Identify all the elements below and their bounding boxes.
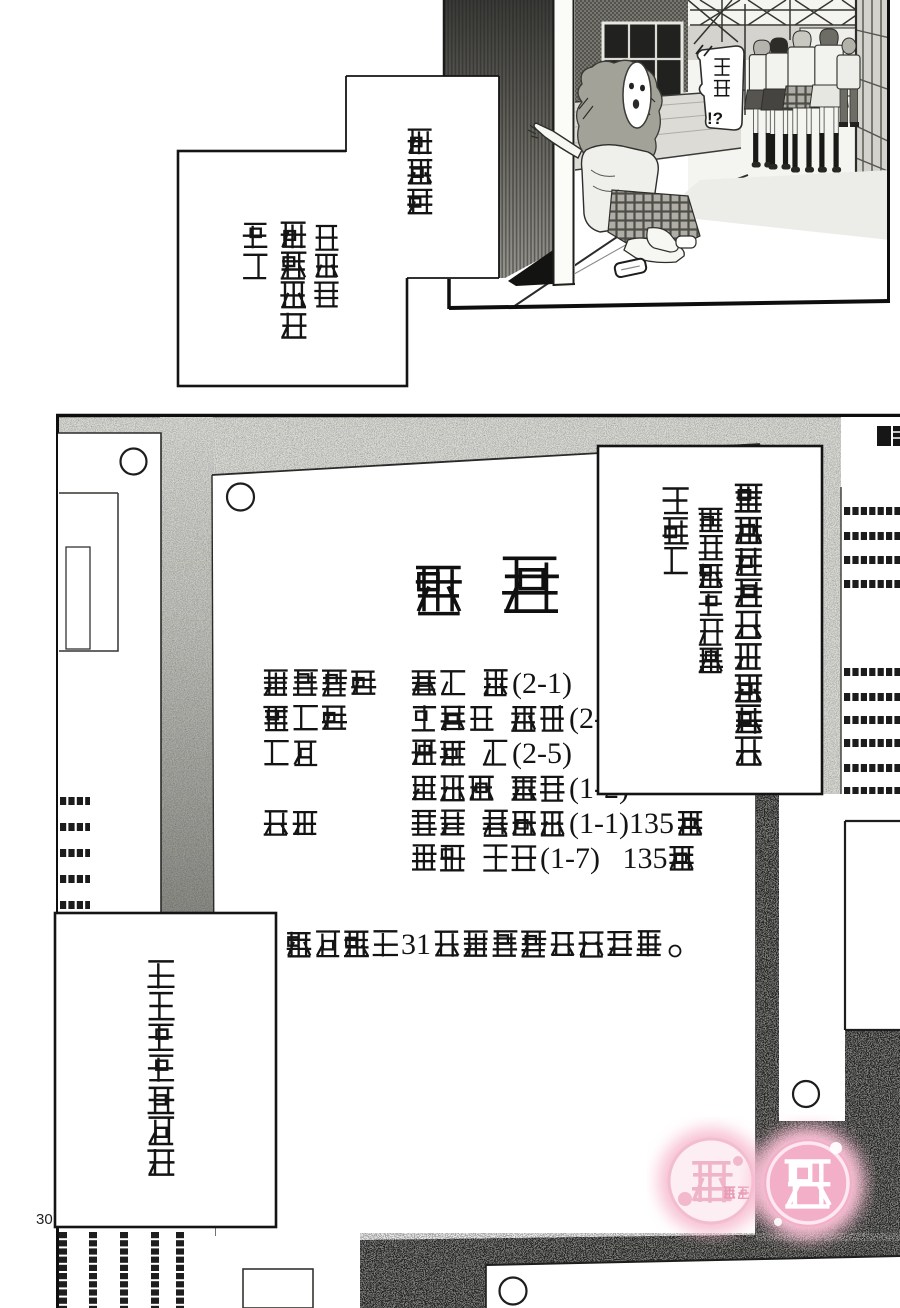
svg-text:!?: !? bbox=[707, 109, 723, 128]
svg-text:(1-1)135: (1-1)135 bbox=[569, 807, 674, 840]
svg-text:(1-7) 135: (1-7) 135 bbox=[540, 842, 667, 875]
svg-text:30: 30 bbox=[36, 1211, 53, 1228]
svg-text:(2-5): (2-5) bbox=[512, 737, 572, 770]
svg-text:(2-1): (2-1) bbox=[512, 667, 572, 700]
svg-text:31: 31 bbox=[401, 928, 431, 961]
